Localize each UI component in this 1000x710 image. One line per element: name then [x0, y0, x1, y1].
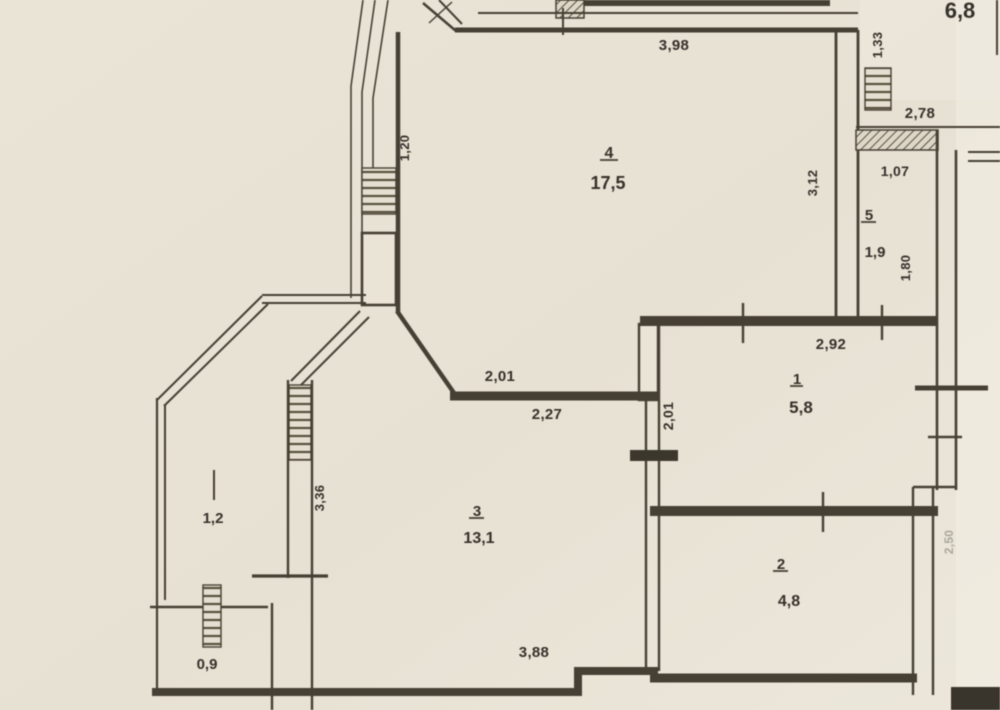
window-room3-left: [289, 385, 311, 460]
paper-background: [0, 0, 1000, 710]
dim-niche-width: 1,07: [881, 163, 909, 179]
dim-room5-right-height: 1,80: [898, 255, 913, 282]
dim-loggia-width: 2,78: [905, 105, 935, 122]
room2-area: 4,8: [778, 593, 800, 610]
dim-balcony-left-window: 1,20: [397, 135, 412, 162]
room4-number: 4: [605, 145, 614, 162]
dim-divider-height: 2,01: [660, 402, 676, 430]
dim-room1-top-width: 2,92: [816, 336, 846, 353]
window-room4-left: [362, 233, 396, 305]
room3-area: 13,1: [463, 530, 494, 547]
dim-hall-top-width: 2,01: [485, 368, 515, 385]
balcony-bottom-area: 0,9: [197, 656, 218, 673]
floor-plan-photo: 4 17,5 5 1,9 1 5,8 3 13,1 2 4,8 1,2 0,9 …: [0, 0, 1000, 710]
room1-number: 1: [793, 371, 801, 388]
wall-top-hatch-block: [556, 0, 584, 18]
wall-room4-left-hatch: [362, 168, 396, 214]
floor-plan-svg: 4 17,5 5 1,9 1 5,8 3 13,1 2 4,8 1,2 0,9 …: [0, 0, 1000, 710]
room5-area: 1,9: [865, 244, 886, 261]
balcony-left-area: 1,2: [203, 510, 224, 527]
dim-right-lower-height: 2,50: [942, 530, 956, 555]
wall-loggia-hatch: [856, 130, 938, 150]
paper-light-edge: [956, 0, 1000, 710]
dim-room3-left-height: 3,36: [312, 485, 327, 512]
dim-bottom-width: 3,88: [519, 644, 549, 661]
loggia-top-right-area: 6,8: [945, 0, 976, 23]
room1-area: 5,8: [789, 398, 813, 417]
wall-corner-block: [951, 687, 1000, 710]
dim-room4-right-height: 3,12: [805, 170, 820, 197]
door-balcony09-hatch: [203, 585, 221, 647]
room2-number: 2: [777, 556, 785, 573]
dim-tick-divider: [630, 450, 678, 461]
door-divider-opening: [639, 324, 658, 400]
wall-pier-top-right: [865, 68, 891, 110]
dim-hall-bottom-width: 2,27: [532, 406, 562, 423]
room3-number: 3: [473, 503, 481, 520]
room4-area: 17,5: [590, 173, 625, 193]
room5-number: 5: [865, 207, 873, 224]
dim-top-width: 3,98: [659, 37, 689, 54]
dim-top-right-vertical: 1,33: [870, 32, 885, 59]
